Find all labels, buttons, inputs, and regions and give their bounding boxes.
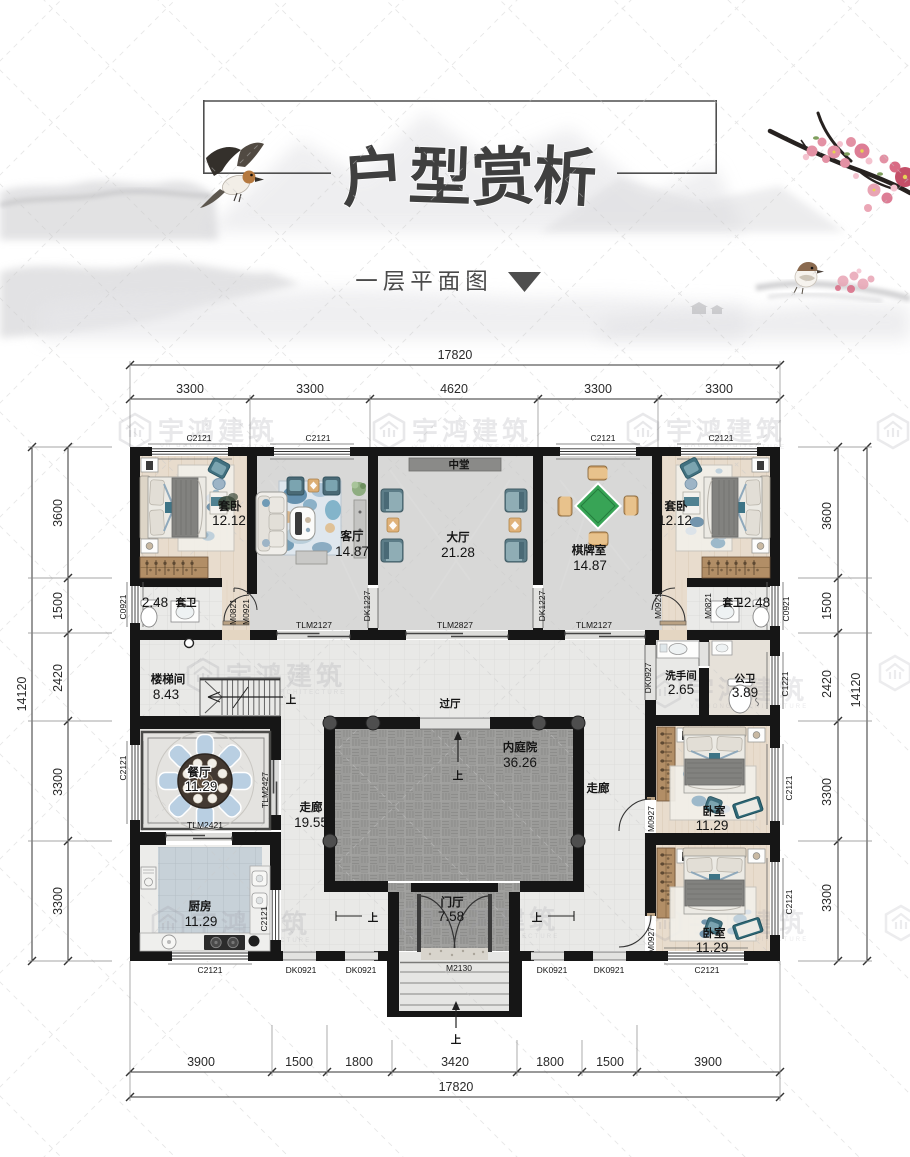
svg-text:M2130: M2130 (446, 963, 472, 973)
svg-text:11.29: 11.29 (185, 914, 218, 929)
svg-text:1500: 1500 (596, 1055, 624, 1069)
svg-text:3420: 3420 (441, 1055, 469, 1069)
svg-text:3300: 3300 (705, 382, 733, 396)
svg-text:19.55: 19.55 (294, 815, 328, 830)
svg-text:上: 上 (532, 911, 543, 924)
svg-text:TLM2127: TLM2127 (576, 620, 612, 630)
svg-text:厨房: 厨房 (189, 899, 212, 913)
svg-text:1500: 1500 (285, 1055, 313, 1069)
svg-text:C2121: C2121 (784, 775, 794, 800)
svg-text:C2121: C2121 (197, 965, 222, 975)
svg-text:4620: 4620 (440, 382, 468, 396)
svg-text:C2121: C2121 (694, 965, 719, 975)
svg-text:M0921: M0921 (241, 599, 251, 625)
svg-text:1800: 1800 (345, 1055, 373, 1069)
svg-text:C1221: C1221 (780, 671, 790, 696)
svg-text:上: 上 (286, 693, 297, 706)
svg-text:DK1227: DK1227 (362, 590, 372, 621)
svg-text:洗手间: 洗手间 (665, 669, 697, 682)
svg-text:14.87: 14.87 (335, 544, 369, 559)
svg-text:1500: 1500 (820, 592, 834, 620)
svg-text:门厅: 门厅 (441, 895, 464, 909)
svg-text:C2121: C2121 (186, 433, 211, 443)
svg-text:14120: 14120 (849, 673, 863, 708)
svg-text:M0921: M0921 (653, 593, 663, 619)
svg-text:17820: 17820 (439, 1080, 474, 1094)
svg-text:7.58: 7.58 (438, 909, 464, 924)
svg-text:DK0927: DK0927 (643, 662, 653, 693)
svg-text:棋牌室: 棋牌室 (572, 543, 607, 557)
svg-text:客厅: 客厅 (340, 529, 364, 543)
svg-text:一层平面图: 一层平面图 (355, 269, 493, 294)
svg-text:DK0921: DK0921 (346, 965, 377, 975)
svg-text:走廊: 走廊 (299, 800, 323, 814)
svg-text:3900: 3900 (694, 1055, 722, 1069)
svg-text:DK0921: DK0921 (537, 965, 568, 975)
svg-text:3300: 3300 (820, 884, 834, 912)
svg-text:2420: 2420 (820, 670, 834, 698)
svg-text:C2121: C2121 (118, 755, 128, 780)
svg-text:14.87: 14.87 (573, 558, 607, 573)
svg-text:3300: 3300 (51, 768, 65, 796)
svg-text:3300: 3300 (296, 382, 324, 396)
svg-text:上: 上 (453, 769, 464, 782)
svg-text:3.89: 3.89 (732, 685, 758, 700)
svg-text:12.12: 12.12 (658, 513, 692, 528)
svg-text:11.29: 11.29 (696, 940, 729, 955)
svg-text:3300: 3300 (820, 778, 834, 806)
svg-text:TLM2127: TLM2127 (296, 620, 332, 630)
svg-text:17820: 17820 (438, 348, 473, 362)
svg-text:大厅: 大厅 (447, 530, 470, 544)
svg-text:21.28: 21.28 (441, 545, 475, 560)
svg-text:DK0921: DK0921 (594, 965, 625, 975)
svg-text:TLM2421: TLM2421 (187, 820, 223, 830)
svg-text:C0921: C0921 (781, 596, 791, 621)
svg-text:3300: 3300 (176, 382, 204, 396)
svg-text:C2121: C2121 (259, 906, 269, 931)
svg-text:C2121: C2121 (784, 889, 794, 914)
svg-text:11.29: 11.29 (696, 818, 729, 833)
svg-text:上: 上 (368, 911, 379, 924)
svg-text:卧室: 卧室 (703, 926, 726, 940)
svg-text:14120: 14120 (15, 677, 29, 712)
svg-text:M0927: M0927 (646, 806, 656, 832)
svg-text:1800: 1800 (536, 1055, 564, 1069)
svg-text:卧室: 卧室 (703, 804, 726, 818)
svg-text:2.65: 2.65 (668, 682, 694, 697)
svg-text:M0821: M0821 (228, 599, 238, 625)
svg-text:套卫: 套卫 (175, 596, 197, 609)
svg-text:C2121: C2121 (590, 433, 615, 443)
svg-text:型: 型 (407, 142, 472, 214)
svg-text:12.12: 12.12 (212, 513, 246, 528)
svg-text:3600: 3600 (820, 502, 834, 530)
svg-text:公卫: 公卫 (735, 673, 756, 685)
svg-text:C2121: C2121 (708, 433, 733, 443)
svg-text:1500: 1500 (51, 592, 65, 620)
svg-text:内庭院: 内庭院 (503, 740, 538, 754)
svg-text:C2121: C2121 (305, 433, 330, 443)
svg-text:2.48: 2.48 (744, 595, 770, 610)
svg-text:TLM2827: TLM2827 (437, 620, 473, 630)
svg-text:2420: 2420 (51, 664, 65, 692)
svg-text:套卧: 套卧 (219, 499, 242, 513)
svg-text:M0927: M0927 (646, 927, 656, 953)
svg-text:C0921: C0921 (118, 594, 128, 619)
svg-text:36.26: 36.26 (503, 755, 537, 770)
svg-text:走廊: 走廊 (586, 781, 610, 795)
svg-text:楼梯间: 楼梯间 (151, 672, 186, 686)
svg-text:套卧: 套卧 (665, 499, 688, 513)
svg-text:2.48: 2.48 (142, 595, 168, 610)
svg-text:11.29: 11.29 (185, 779, 218, 794)
svg-text:过厅: 过厅 (440, 697, 461, 710)
svg-text:3900: 3900 (187, 1055, 215, 1069)
svg-text:3300: 3300 (51, 887, 65, 915)
svg-text:析: 析 (532, 141, 599, 214)
svg-text:3300: 3300 (584, 382, 612, 396)
svg-text:户: 户 (339, 141, 407, 215)
svg-text:TLM2427: TLM2427 (260, 772, 270, 808)
svg-text:上: 上 (451, 1033, 462, 1046)
svg-text:8.43: 8.43 (153, 687, 179, 702)
svg-text:套卫: 套卫 (722, 596, 744, 609)
svg-text:赏: 赏 (470, 142, 535, 214)
svg-text:餐厅: 餐厅 (187, 765, 211, 779)
svg-text:3600: 3600 (51, 499, 65, 527)
svg-text:中堂: 中堂 (449, 458, 470, 471)
svg-text:M0821: M0821 (703, 593, 713, 619)
svg-text:DK0921: DK0921 (286, 965, 317, 975)
svg-text:DK1227: DK1227 (537, 590, 547, 621)
